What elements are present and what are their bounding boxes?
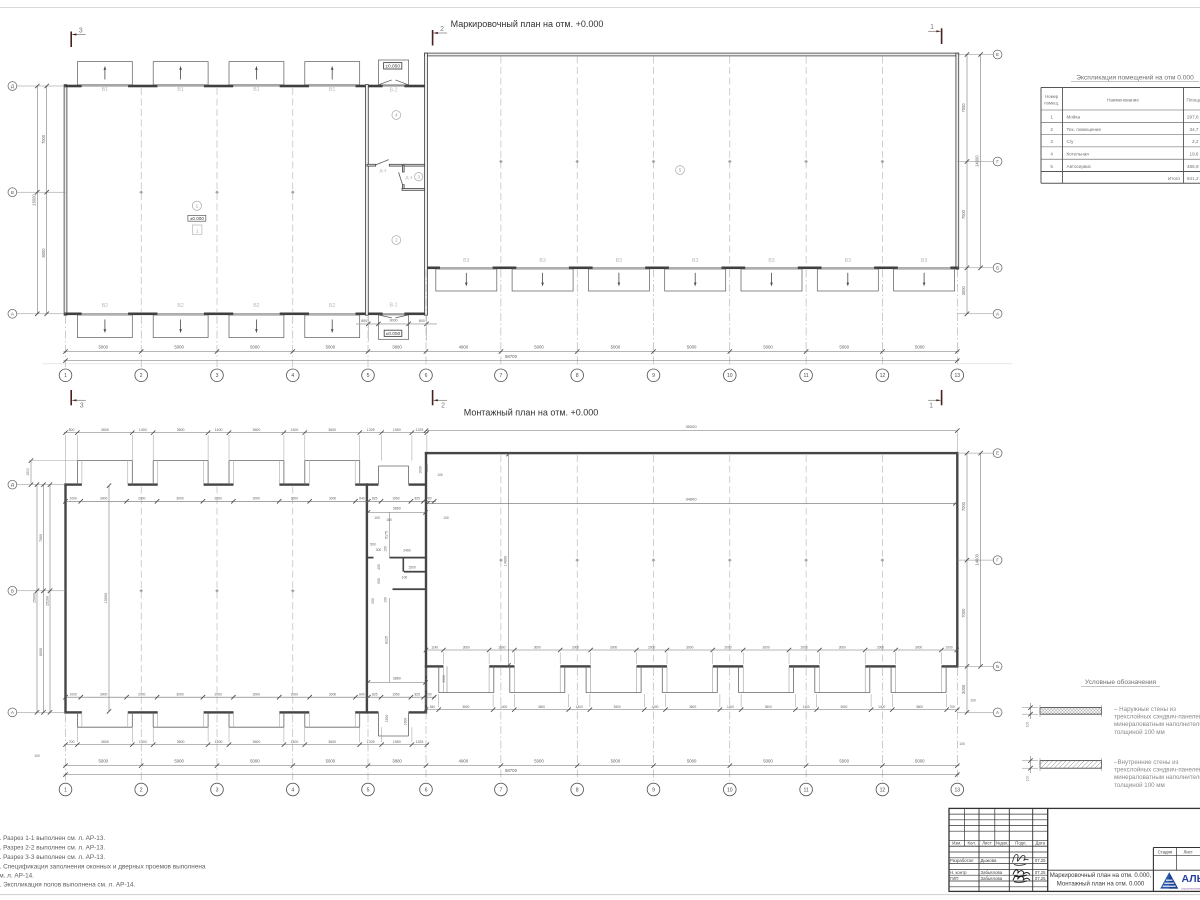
svg-text:9: 9	[652, 373, 655, 379]
svg-text:2000: 2000	[648, 645, 655, 649]
svg-text:1400: 1400	[651, 705, 658, 709]
svg-text:3600: 3600	[538, 705, 545, 709]
svg-text:В3: В3	[845, 258, 851, 264]
svg-text:1. Разрез 1-1 выполнен см. л.: 1. Разрез 1-1 выполнен см. л. АР-13.	[0, 835, 105, 842]
svg-text:минераловатным наполнителем: минераловатным наполнителем	[1114, 774, 1200, 781]
svg-text:3000: 3000	[329, 497, 337, 501]
svg-text:3600: 3600	[101, 740, 109, 744]
svg-text:Лист: Лист	[982, 840, 991, 845]
svg-text:8: 8	[576, 787, 579, 793]
svg-text:3600: 3600	[177, 740, 185, 744]
svg-text:1000: 1000	[946, 645, 953, 649]
svg-text:строительная компания: строительная компания	[1182, 886, 1200, 890]
svg-text:3860: 3860	[393, 677, 401, 681]
svg-text:2000: 2000	[724, 645, 731, 649]
svg-text:3600: 3600	[328, 428, 336, 432]
svg-text:2000: 2000	[138, 693, 146, 697]
svg-text:Дыжова: Дыжова	[981, 858, 997, 863]
svg-text:В3: В3	[692, 258, 698, 264]
svg-text:841,2: 841,2	[1187, 176, 1199, 181]
svg-text:34800: 34800	[685, 497, 697, 502]
svg-text:Площадь, м²: Площадь, м²	[1187, 98, 1200, 103]
svg-text:3600: 3600	[840, 705, 847, 709]
svg-text:3600: 3600	[253, 428, 261, 432]
svg-text:3000: 3000	[915, 645, 922, 649]
svg-text:3600: 3600	[689, 705, 696, 709]
svg-text:5000: 5000	[326, 345, 336, 350]
svg-text:840: 840	[359, 497, 365, 501]
svg-text:Б: Б	[996, 265, 999, 270]
svg-text:12: 12	[880, 373, 886, 379]
svg-text:Изм.: Изм.	[952, 840, 961, 845]
svg-text:1400: 1400	[291, 740, 299, 744]
svg-text:7: 7	[499, 787, 502, 793]
svg-text:1: 1	[1050, 115, 1053, 120]
svg-text:толщиной 100 мм: толщиной 100 мм	[1114, 782, 1165, 789]
svg-text:3000: 3000	[610, 645, 617, 649]
svg-text:14000: 14000	[975, 155, 980, 167]
svg-text:В1: В1	[253, 87, 259, 93]
svg-text:5175: 5175	[384, 531, 388, 539]
svg-text:5000: 5000	[99, 345, 109, 350]
svg-text:5: 5	[367, 373, 370, 379]
svg-text:3600: 3600	[916, 705, 923, 709]
svg-text:3000: 3000	[763, 645, 770, 649]
svg-text:900: 900	[377, 578, 381, 584]
svg-text:Кол.: Кол.	[967, 840, 976, 845]
svg-text:В3: В3	[616, 258, 622, 264]
svg-text:3000: 3000	[442, 675, 446, 683]
svg-text:Мойка: Мойка	[1067, 114, 1081, 120]
svg-text:13: 13	[954, 787, 960, 793]
svg-text:3600: 3600	[328, 740, 336, 744]
svg-text:В3: В3	[921, 258, 927, 264]
svg-text:1400: 1400	[139, 428, 147, 432]
svg-text:8: 8	[576, 373, 579, 379]
svg-text:6: 6	[425, 373, 428, 379]
svg-text:Б: Б	[996, 664, 999, 669]
svg-text:5000: 5000	[326, 759, 336, 764]
svg-text:1950: 1950	[392, 693, 400, 697]
svg-text:4: 4	[1050, 152, 1053, 157]
svg-text:9: 9	[652, 787, 655, 793]
svg-text:5000: 5000	[763, 759, 773, 764]
svg-text:100: 100	[959, 742, 965, 746]
svg-text:1: 1	[196, 203, 199, 208]
svg-text:1400: 1400	[291, 428, 299, 432]
svg-text:7000: 7000	[961, 501, 966, 511]
svg-text:3000: 3000	[961, 684, 966, 694]
svg-text:7000: 7000	[961, 209, 966, 219]
svg-text:Н. контр: Н. контр	[950, 870, 967, 875]
svg-text:2: 2	[140, 787, 143, 793]
svg-text:Д-3: Д-3	[406, 175, 413, 180]
svg-text:В1: В1	[177, 87, 183, 93]
svg-text:800: 800	[419, 319, 425, 323]
svg-text:Лист: Лист	[1184, 849, 1193, 854]
svg-text:100: 100	[1025, 776, 1029, 782]
svg-text:58700: 58700	[505, 354, 518, 359]
svg-text:минераловатным наполнителем: минераловатным наполнителем	[1114, 721, 1200, 728]
svg-text:4: 4	[291, 373, 294, 379]
svg-text:±0.050: ±0.050	[385, 64, 400, 70]
svg-text:Котельная: Котельная	[1067, 152, 1090, 157]
svg-text:В: В	[11, 190, 14, 195]
svg-text:Д-4: Д-4	[380, 168, 387, 173]
svg-text:5000: 5000	[174, 345, 184, 350]
svg-text:7000: 7000	[961, 103, 966, 113]
svg-text:3000: 3000	[100, 497, 108, 501]
svg-text:1400: 1400	[500, 705, 507, 709]
svg-text:Дата: Дата	[1035, 840, 1045, 845]
svg-text:1400: 1400	[727, 705, 734, 709]
svg-text:Разработал: Разработал	[950, 858, 974, 863]
svg-text:300: 300	[376, 548, 382, 552]
svg-text:2000: 2000	[215, 497, 223, 501]
svg-text:700: 700	[949, 705, 955, 709]
svg-text:07.25: 07.25	[1035, 858, 1046, 863]
svg-text:2: 2	[441, 403, 445, 410]
svg-text:8000: 8000	[41, 248, 46, 258]
svg-text:1225: 1225	[416, 428, 424, 432]
svg-text:1400: 1400	[878, 705, 885, 709]
svg-text:1400: 1400	[215, 740, 223, 744]
svg-text:ГИП: ГИП	[950, 876, 959, 881]
svg-text:5000: 5000	[687, 345, 697, 350]
svg-text:–Внутренние стены из: –Внутренние стены из	[1114, 759, 1179, 766]
svg-text:07.25: 07.25	[1035, 876, 1046, 881]
svg-text:2000: 2000	[291, 693, 299, 697]
svg-text:100: 100	[34, 754, 40, 758]
svg-text:14000: 14000	[503, 556, 507, 567]
svg-text:Монтажный план на отм. 0.000: Монтажный план на отм. 0.000	[1057, 881, 1145, 888]
svg-text:7000: 7000	[41, 134, 46, 144]
svg-text:8125: 8125	[384, 636, 388, 644]
svg-text:486,9: 486,9	[1187, 164, 1199, 169]
svg-text:5000: 5000	[99, 759, 109, 764]
svg-text:1660: 1660	[498, 645, 505, 649]
svg-text:В1: В1	[329, 87, 335, 93]
svg-text:7: 7	[499, 373, 502, 379]
svg-text:3000: 3000	[329, 693, 337, 697]
svg-text:3000: 3000	[253, 693, 261, 697]
svg-text:3000: 3000	[390, 318, 398, 322]
svg-text:4. Спецификация заполнения око: 4. Спецификация заполнения оконных и две…	[0, 863, 206, 870]
svg-text:3: 3	[80, 403, 84, 410]
svg-text:3000: 3000	[961, 286, 966, 296]
svg-text:– Наружные стены из: – Наружные стены из	[1114, 706, 1176, 713]
svg-text:Условные обозначения: Условные обозначения	[1085, 678, 1157, 686]
svg-text:35000: 35000	[685, 424, 697, 429]
svg-text:1: 1	[929, 403, 933, 410]
svg-text:7000: 7000	[39, 534, 43, 542]
svg-text:15200: 15200	[45, 596, 49, 606]
svg-text:5000: 5000	[250, 759, 260, 764]
svg-text:В: В	[11, 588, 14, 593]
svg-text:3600: 3600	[614, 705, 621, 709]
svg-text:100: 100	[374, 516, 380, 520]
svg-text:3000: 3000	[176, 497, 184, 501]
svg-text:160: 160	[386, 518, 392, 522]
svg-text:С/у: С/у	[1067, 139, 1075, 144]
svg-text:840: 840	[430, 705, 436, 709]
svg-text:Маркировочный план на отм. +0.: Маркировочный план на отм. +0.000	[451, 19, 604, 29]
svg-text:трехслойных сэндвич-панелей с: трехслойных сэндвич-панелей с	[1114, 767, 1200, 774]
svg-text:Монтажный план на отм. +0.000: Монтажный план на отм. +0.000	[464, 408, 599, 418]
svg-text:297,8: 297,8	[1187, 115, 1199, 120]
svg-text:В-2: В-2	[389, 88, 397, 94]
svg-text:500: 500	[370, 543, 376, 547]
svg-text:15000: 15000	[32, 593, 36, 603]
svg-text:толщиной 100 мм: толщиной 100 мм	[1114, 729, 1165, 736]
svg-text:5000: 5000	[611, 759, 621, 764]
svg-text:5000: 5000	[534, 345, 544, 350]
svg-text:1000: 1000	[70, 497, 78, 501]
svg-text:5000: 5000	[839, 759, 849, 764]
svg-text:3800: 3800	[392, 345, 402, 350]
svg-text:5000: 5000	[763, 345, 773, 350]
svg-text:8000: 8000	[39, 648, 43, 656]
svg-text:100: 100	[402, 576, 408, 580]
svg-text:3000: 3000	[686, 645, 693, 649]
svg-text:1950: 1950	[392, 497, 400, 501]
svg-text:15000: 15000	[32, 194, 37, 206]
svg-text:3. Разрез 3-3 выполнен см. л.: 3. Разрез 3-3 выполнен см. л. АР-13.	[0, 854, 105, 861]
svg-text:2460: 2460	[403, 548, 411, 552]
svg-text:Наименование: Наименование	[1107, 98, 1139, 103]
svg-text:10: 10	[727, 373, 733, 379]
svg-text:200: 200	[371, 598, 375, 604]
svg-text:3000: 3000	[839, 645, 846, 649]
svg-text:3860: 3860	[393, 507, 401, 511]
svg-text:100: 100	[1025, 722, 1029, 728]
svg-text:В-1: В-1	[389, 303, 397, 309]
svg-text:5000: 5000	[250, 345, 260, 350]
svg-text:3600: 3600	[253, 740, 261, 744]
svg-text:58700: 58700	[505, 768, 518, 773]
svg-text:100: 100	[384, 597, 388, 603]
svg-text:2000: 2000	[291, 497, 299, 501]
svg-text:В3: В3	[768, 258, 774, 264]
svg-text:13: 13	[954, 373, 960, 379]
svg-text:2: 2	[440, 26, 444, 33]
svg-text:2000: 2000	[572, 645, 579, 649]
svg-text:5: 5	[1050, 164, 1053, 169]
svg-text:800: 800	[361, 319, 367, 323]
svg-text:1325: 1325	[416, 740, 424, 744]
svg-text:5000: 5000	[839, 345, 849, 350]
svg-text:1950: 1950	[393, 740, 401, 744]
svg-text:1400: 1400	[576, 705, 583, 709]
svg-text:Тех. помещение: Тех. помещение	[1067, 127, 1102, 132]
svg-text:10: 10	[727, 787, 733, 793]
svg-text:100: 100	[437, 473, 443, 477]
svg-text:5000: 5000	[915, 759, 925, 764]
svg-text:3: 3	[1050, 139, 1053, 144]
svg-text:3600: 3600	[177, 428, 185, 432]
svg-text:11: 11	[803, 787, 808, 793]
svg-text:2000: 2000	[877, 645, 884, 649]
svg-text:3600: 3600	[765, 705, 772, 709]
svg-text:700: 700	[426, 497, 432, 501]
svg-text:трехслойных сэндвич-панелей с: трехслойных сэндвич-панелей с	[1114, 714, 1200, 721]
svg-text:Подп.: Подп.	[1015, 840, 1026, 845]
svg-text:Забьялова: Забьялова	[981, 870, 1003, 875]
svg-text:2000: 2000	[801, 645, 808, 649]
svg-text:В2: В2	[177, 303, 183, 309]
svg-text:100: 100	[443, 516, 449, 520]
svg-text:5. Экспликация полов выполнена: 5. Экспликация полов выполнена см. л. АР…	[0, 881, 136, 888]
svg-text:3000: 3000	[253, 497, 261, 501]
svg-text:3: 3	[79, 27, 83, 34]
svg-text:825: 825	[372, 497, 378, 501]
svg-text:5000: 5000	[174, 759, 184, 764]
svg-text:3000: 3000	[100, 693, 108, 697]
svg-text:19,6: 19,6	[1190, 152, 1199, 157]
svg-text:4: 4	[291, 787, 294, 793]
svg-text:1000: 1000	[70, 693, 78, 697]
svg-text:см. л. АР-14.: см. л. АР-14.	[0, 872, 34, 879]
svg-text:400: 400	[377, 564, 381, 570]
svg-text:11: 11	[803, 373, 808, 379]
svg-text:В1: В1	[102, 87, 108, 93]
svg-text:100: 100	[970, 699, 976, 703]
svg-text:Экспликация помещений на отм 0: Экспликация помещений на отм 0.000	[1076, 74, 1194, 82]
svg-text:3: 3	[216, 373, 219, 379]
svg-text:Автосервис: Автосервис	[1067, 164, 1092, 169]
svg-text:3000: 3000	[534, 645, 541, 649]
svg-text:4900: 4900	[459, 345, 469, 350]
svg-text:В2: В2	[102, 303, 108, 309]
svg-text:В2: В2	[329, 303, 335, 309]
svg-text:12: 12	[880, 787, 886, 793]
svg-text:1400: 1400	[139, 740, 147, 744]
svg-text:В3: В3	[539, 258, 545, 264]
svg-text:1: 1	[64, 373, 67, 379]
svg-text:825: 825	[372, 693, 378, 697]
svg-text:2: 2	[140, 373, 143, 379]
svg-text:Забьялова: Забьялова	[981, 876, 1003, 881]
svg-text:700: 700	[426, 693, 432, 697]
svg-text:1: 1	[930, 24, 934, 31]
svg-text:5: 5	[367, 787, 370, 793]
svg-text:1600: 1600	[419, 466, 423, 474]
svg-text:5000: 5000	[687, 759, 697, 764]
svg-text:800: 800	[69, 428, 75, 432]
svg-text:Номер: Номер	[1045, 94, 1059, 99]
svg-text:Итого: Итого	[1168, 176, 1180, 181]
svg-text:1: 1	[64, 787, 67, 793]
svg-text:7000: 7000	[961, 608, 966, 618]
svg-text:15000: 15000	[104, 593, 108, 604]
svg-text:Стадия: Стадия	[1158, 849, 1173, 854]
svg-text:5000: 5000	[915, 345, 925, 350]
svg-text:700: 700	[69, 740, 75, 744]
svg-text:№док.: №док.	[996, 840, 1009, 845]
svg-text:2: 2	[1050, 127, 1053, 132]
svg-text:±0.050: ±0.050	[386, 331, 401, 337]
svg-text:Е: Е	[996, 451, 999, 456]
svg-text:825: 825	[414, 693, 420, 697]
svg-text:3: 3	[216, 787, 219, 793]
svg-text:2000: 2000	[215, 693, 223, 697]
svg-text:07.25: 07.25	[1035, 870, 1046, 875]
svg-text:3800: 3800	[392, 759, 402, 764]
svg-text:3000: 3000	[176, 693, 184, 697]
svg-text:Маркировочный план на отм. 0.0: Маркировочный план на отм. 0.000,	[1050, 872, 1152, 879]
svg-text:34,7: 34,7	[1190, 127, 1199, 132]
svg-text:1500: 1500	[408, 566, 416, 570]
svg-text:1400: 1400	[215, 428, 223, 432]
svg-text:5000: 5000	[611, 345, 621, 350]
svg-text:2000: 2000	[425, 464, 429, 472]
svg-text:100: 100	[384, 546, 388, 552]
svg-text:1140: 1140	[431, 645, 438, 649]
svg-text:1500: 1500	[385, 715, 389, 723]
svg-text:1600: 1600	[404, 718, 408, 726]
svg-text:6: 6	[425, 787, 428, 793]
svg-text:АЛЬЯНС: АЛЬЯНС	[1182, 873, 1200, 885]
svg-text:2,2: 2,2	[1192, 139, 1199, 144]
svg-text:4900: 4900	[459, 759, 469, 764]
svg-text:помещ.: помещ.	[1044, 101, 1059, 106]
svg-text:825: 825	[414, 497, 420, 501]
svg-text:3600: 3600	[462, 705, 469, 709]
svg-text:5000: 5000	[534, 759, 544, 764]
svg-text:В3: В3	[463, 258, 469, 264]
svg-text:1500: 1500	[26, 468, 30, 476]
svg-text:3600: 3600	[101, 428, 109, 432]
svg-text:±0.000: ±0.000	[190, 216, 204, 221]
svg-text:1950: 1950	[393, 428, 401, 432]
svg-text:3000: 3000	[463, 645, 470, 649]
svg-text:14000: 14000	[975, 553, 980, 565]
svg-text:840: 840	[359, 693, 365, 697]
svg-text:1: 1	[196, 228, 199, 234]
svg-text:2. Разрез 2-2 выполнен см. л.: 2. Разрез 2-2 выполнен см. л. АР-13.	[0, 844, 105, 851]
svg-text:Е: Е	[996, 52, 999, 57]
svg-text:В2: В2	[253, 303, 259, 309]
svg-text:1325: 1325	[367, 428, 375, 432]
svg-text:2000: 2000	[138, 497, 146, 501]
